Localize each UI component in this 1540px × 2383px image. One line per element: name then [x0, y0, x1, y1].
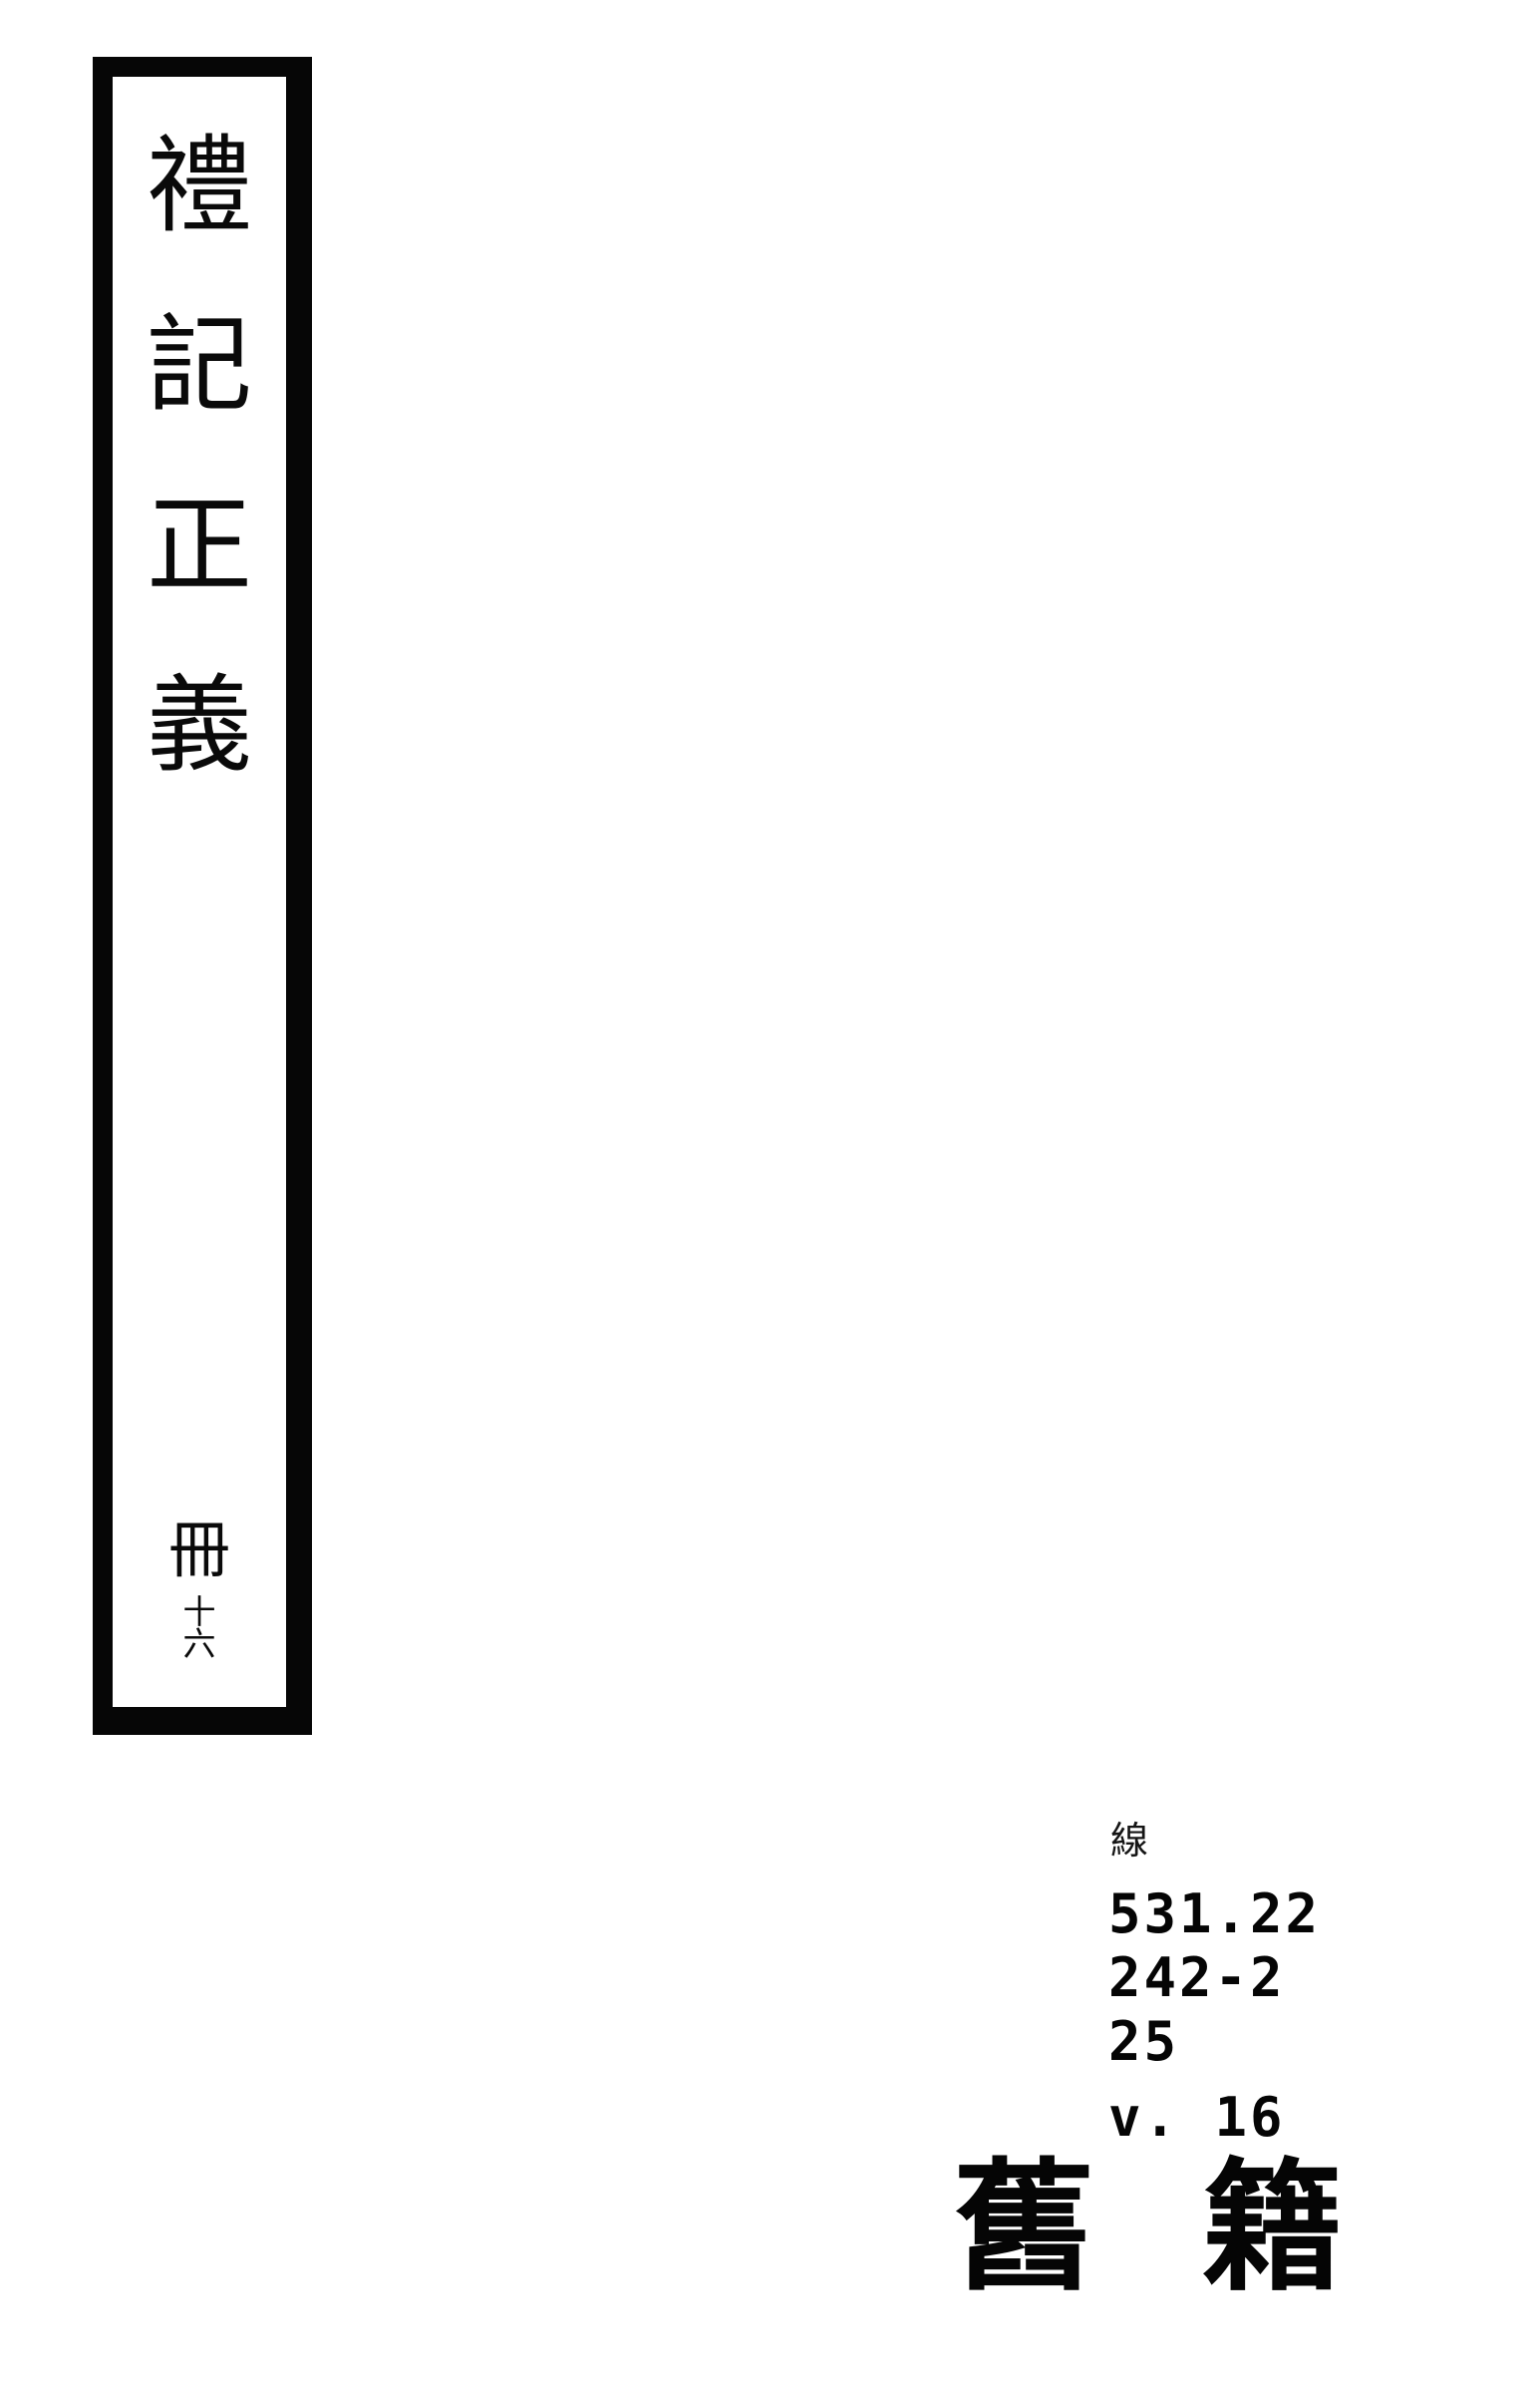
call-number-line-3: 25 — [1108, 2010, 1321, 2074]
collection-stamp: 舊 籍 — [953, 2152, 1344, 2304]
volume-prefix-char: 冊 — [168, 1520, 230, 1581]
title-char-3: 正 — [147, 491, 252, 602]
stamp-char-2: 籍 — [1202, 2152, 1344, 2304]
book-title-vertical: 禮 記 正 義 — [113, 131, 286, 782]
title-slip-box: 禮 記 正 義 冊 十六 — [93, 57, 312, 1735]
title-char-1: 禮 — [147, 131, 252, 242]
call-number-line-1: 531.22 — [1108, 1882, 1321, 1946]
volume-label: 冊 十六 — [113, 1520, 286, 1659]
call-number-line-2: 242-2 — [1108, 1946, 1321, 2010]
scanned-book-cover-page: 禮 記 正 義 冊 十六 線 531.22 242-2 25 v. 16 舊 籍 — [0, 0, 1540, 2383]
collection-class-char: 線 — [1110, 1819, 1321, 1863]
stamp-char-1: 舊 — [953, 2152, 1094, 2304]
title-char-2: 記 — [147, 310, 252, 422]
call-number-block: 線 531.22 242-2 25 v. 16 — [1108, 1819, 1321, 2150]
volume-number-ligature: 十六 — [183, 1596, 216, 1659]
call-number-volume-line: v. 16 — [1108, 2086, 1321, 2150]
title-char-4: 義 — [147, 670, 252, 782]
